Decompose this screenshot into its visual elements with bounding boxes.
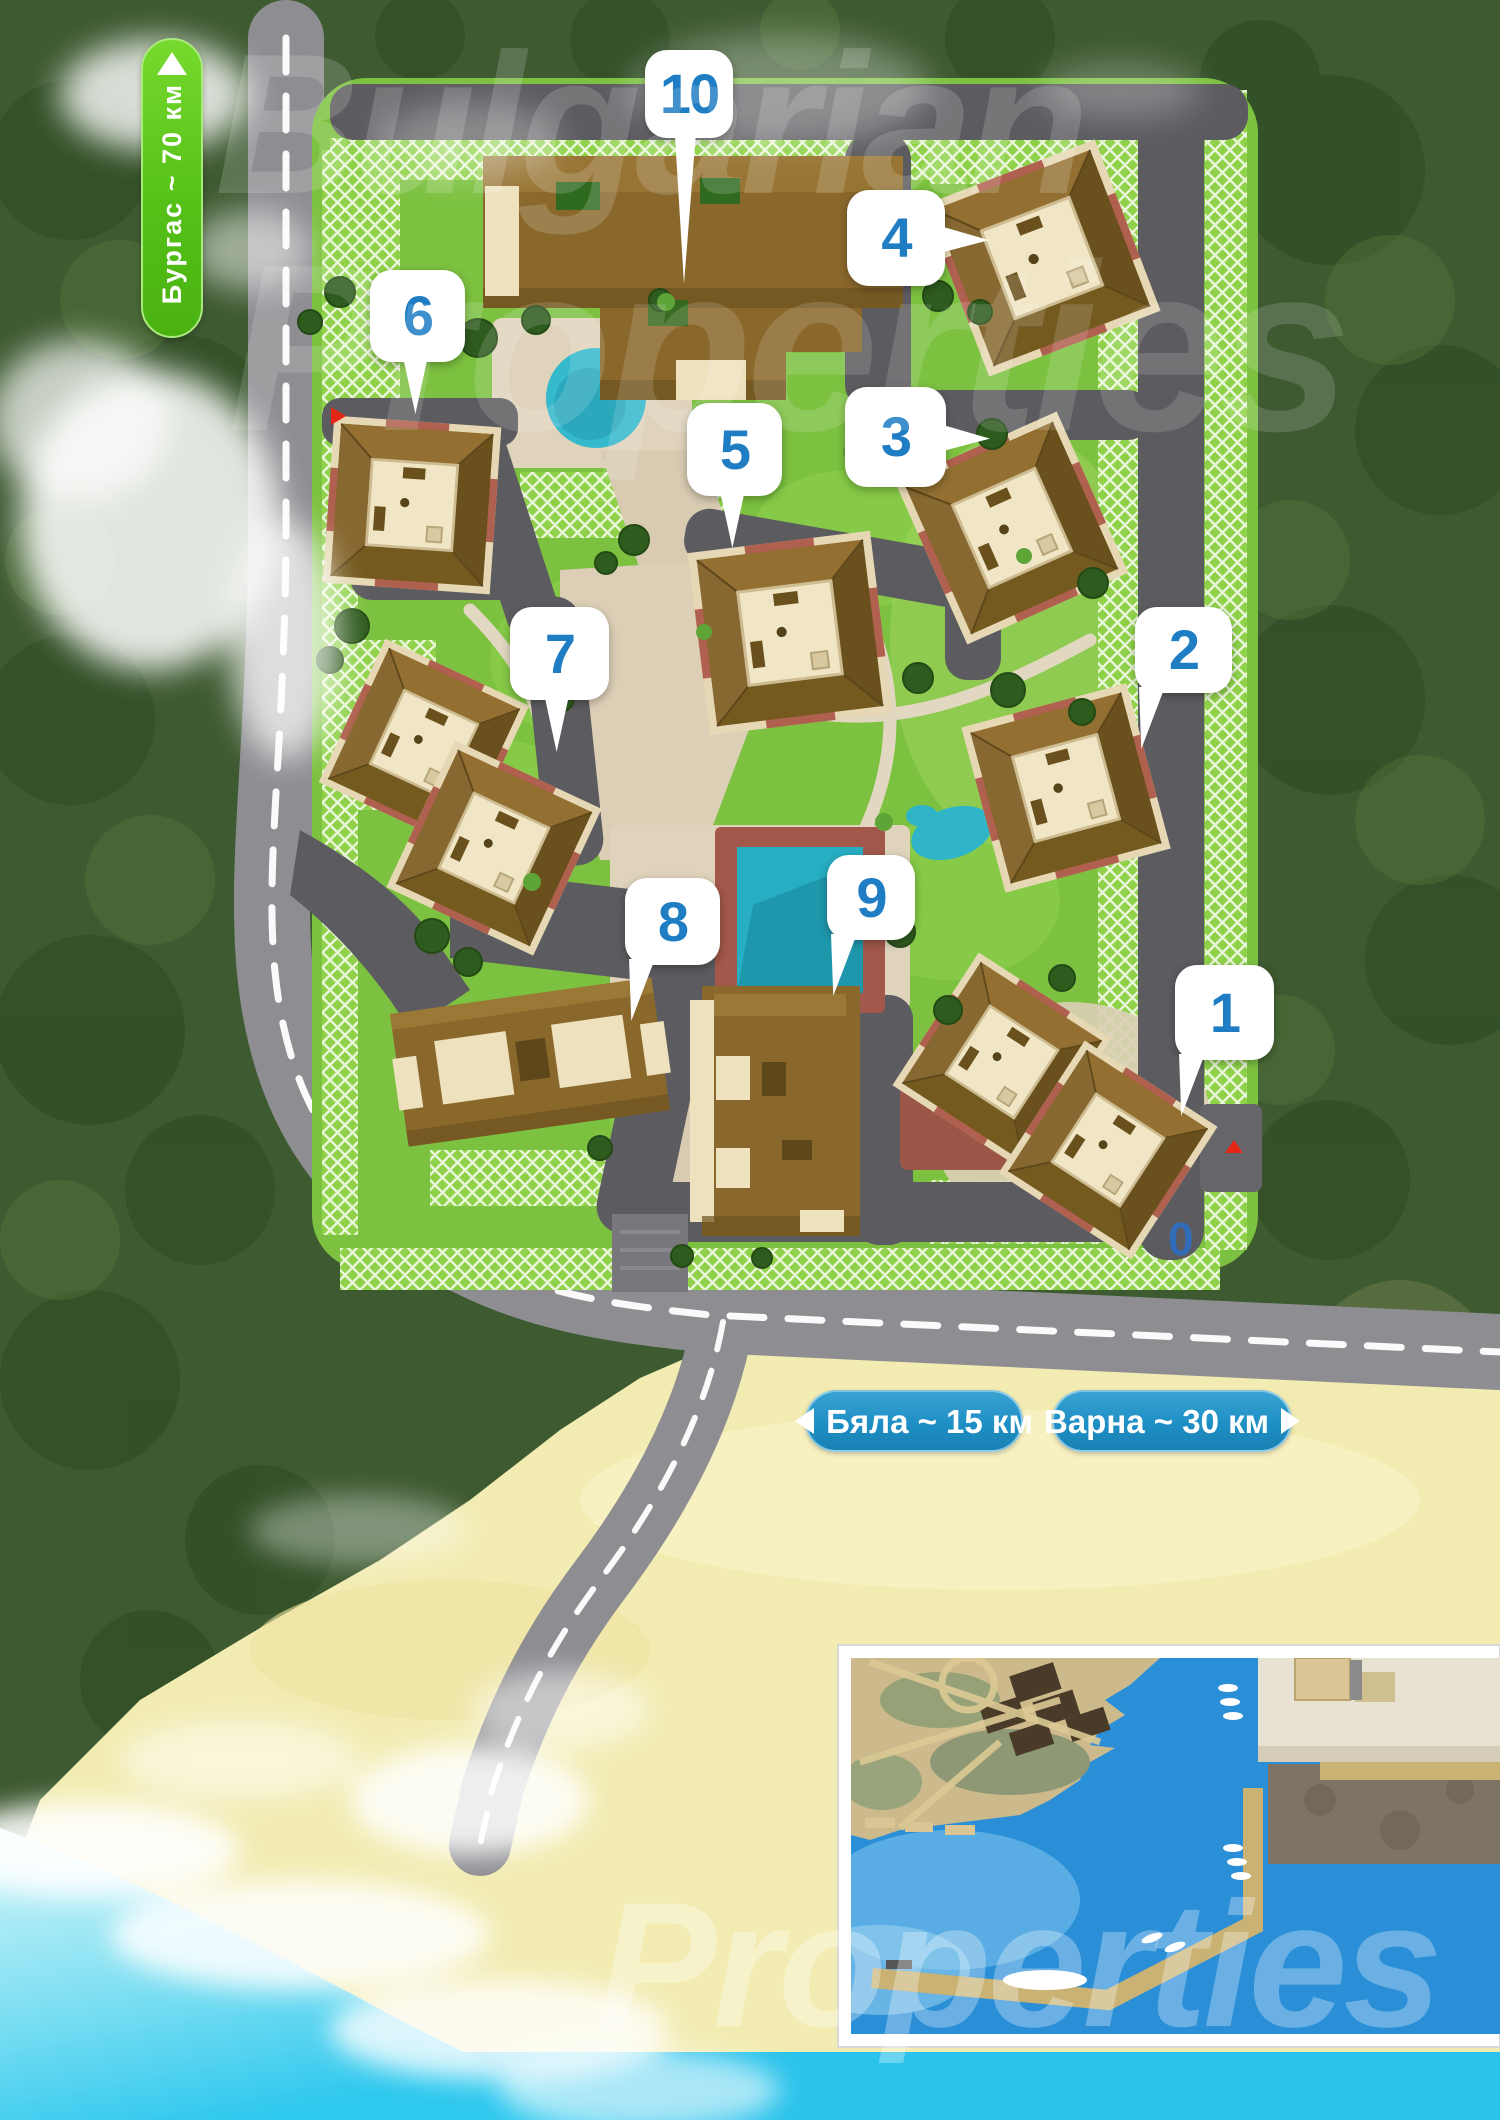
building-marker-4: 4 (847, 190, 945, 286)
building-marker-1: 1 (1175, 965, 1274, 1060)
byala-distance-label: Бяла ~ 15 км (826, 1405, 1033, 1438)
watermark-digit: 0 (1168, 1216, 1194, 1262)
byala-distance-banner: Бяла ~ 15 км (805, 1390, 1023, 1452)
building-marker-9: 9 (827, 855, 915, 940)
burgas-distance-label: Бургас ~ 70 км (159, 83, 186, 304)
burgas-distance-sign: Бургас ~ 70 км (141, 38, 203, 338)
entrance-marker-icon (1225, 1140, 1243, 1153)
marina-inset-image (790, 1645, 1500, 2047)
entrance-marker-icon (331, 407, 346, 425)
right-arrow-icon (1281, 1408, 1300, 1434)
left-arrow-icon (795, 1408, 814, 1434)
building-marker-8: 8 (625, 878, 720, 965)
varna-distance-label: Варна ~ 30 км (1044, 1405, 1269, 1438)
building-5 (688, 531, 893, 736)
varna-distance-banner: Варна ~ 30 км (1052, 1390, 1292, 1452)
building-marker-10: 10 (645, 50, 733, 138)
marker-label: 8 (658, 894, 687, 950)
marker-label: 6 (403, 288, 432, 344)
marker-label: 1 (1210, 985, 1239, 1041)
building-marker-2: 2 (1135, 607, 1232, 693)
building-marker-5: 5 (687, 403, 782, 496)
marker-label: 2 (1169, 622, 1198, 678)
marker-label: 5 (720, 422, 749, 478)
building-marker-6: 6 (370, 270, 465, 362)
building-marker-7: 7 (510, 607, 609, 700)
marker-label: 10 (660, 66, 718, 122)
marker-label: 3 (881, 409, 910, 465)
up-arrow-icon (157, 52, 187, 75)
map-artwork (0, 0, 1500, 2120)
marker-label: 7 (545, 626, 574, 682)
marker-label: 9 (856, 870, 885, 926)
marker-label: 4 (881, 210, 910, 266)
resort-site (290, 78, 1262, 1292)
building-marker-3: 3 (845, 387, 946, 487)
resort-site-plan: Бургас ~ 70 км 10465372891 Бяла ~ 15 км … (0, 0, 1500, 2120)
building-6 (323, 416, 502, 595)
building-9 (690, 986, 860, 1236)
